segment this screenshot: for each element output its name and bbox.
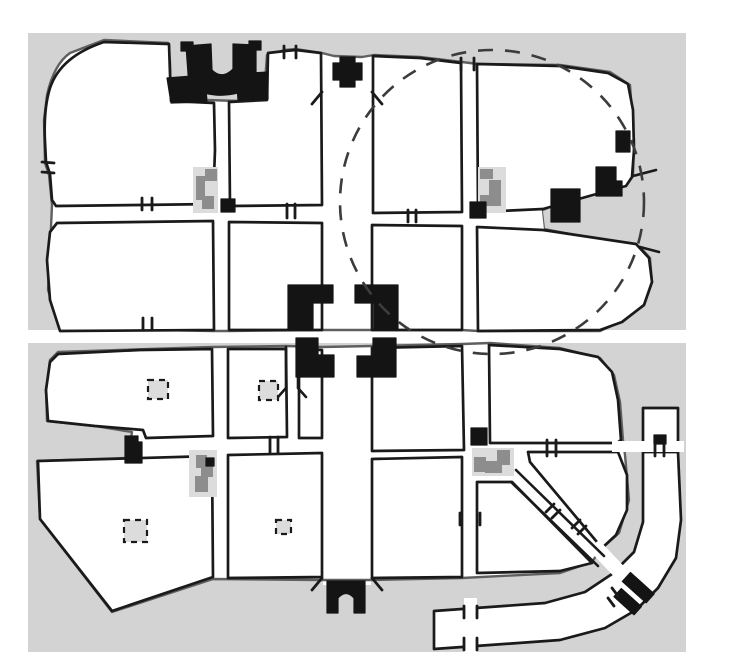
street-corner-block	[471, 428, 487, 445]
court-square-2	[259, 381, 278, 400]
compound-lower-left-annex	[206, 458, 214, 466]
compound-lower-right	[472, 448, 514, 476]
court-square-3	[124, 520, 147, 542]
court-square-1	[148, 380, 168, 399]
compound-upper-right-annex	[470, 202, 486, 218]
upper-block-sw	[47, 221, 214, 331]
lower-block-s-center	[228, 453, 322, 578]
lower-block-se-inner	[372, 457, 462, 578]
court-square-4	[276, 520, 291, 534]
east-street-band-overlay	[612, 441, 684, 452]
upper-block-ne-inner	[373, 56, 462, 213]
east-gate-block	[551, 189, 580, 222]
lower-block-nw	[46, 349, 213, 438]
city-plan-figure	[0, 0, 745, 668]
lower-block-ne	[489, 345, 621, 443]
lower-block-n-center-1	[228, 349, 287, 438]
east-wall-tower	[616, 131, 630, 152]
compound-upper-left-annex	[221, 199, 235, 212]
arm-street-gap	[464, 600, 477, 652]
compound-lower-left	[189, 450, 217, 497]
city-plan-canvas	[0, 0, 745, 668]
upper-block-se	[477, 227, 652, 331]
